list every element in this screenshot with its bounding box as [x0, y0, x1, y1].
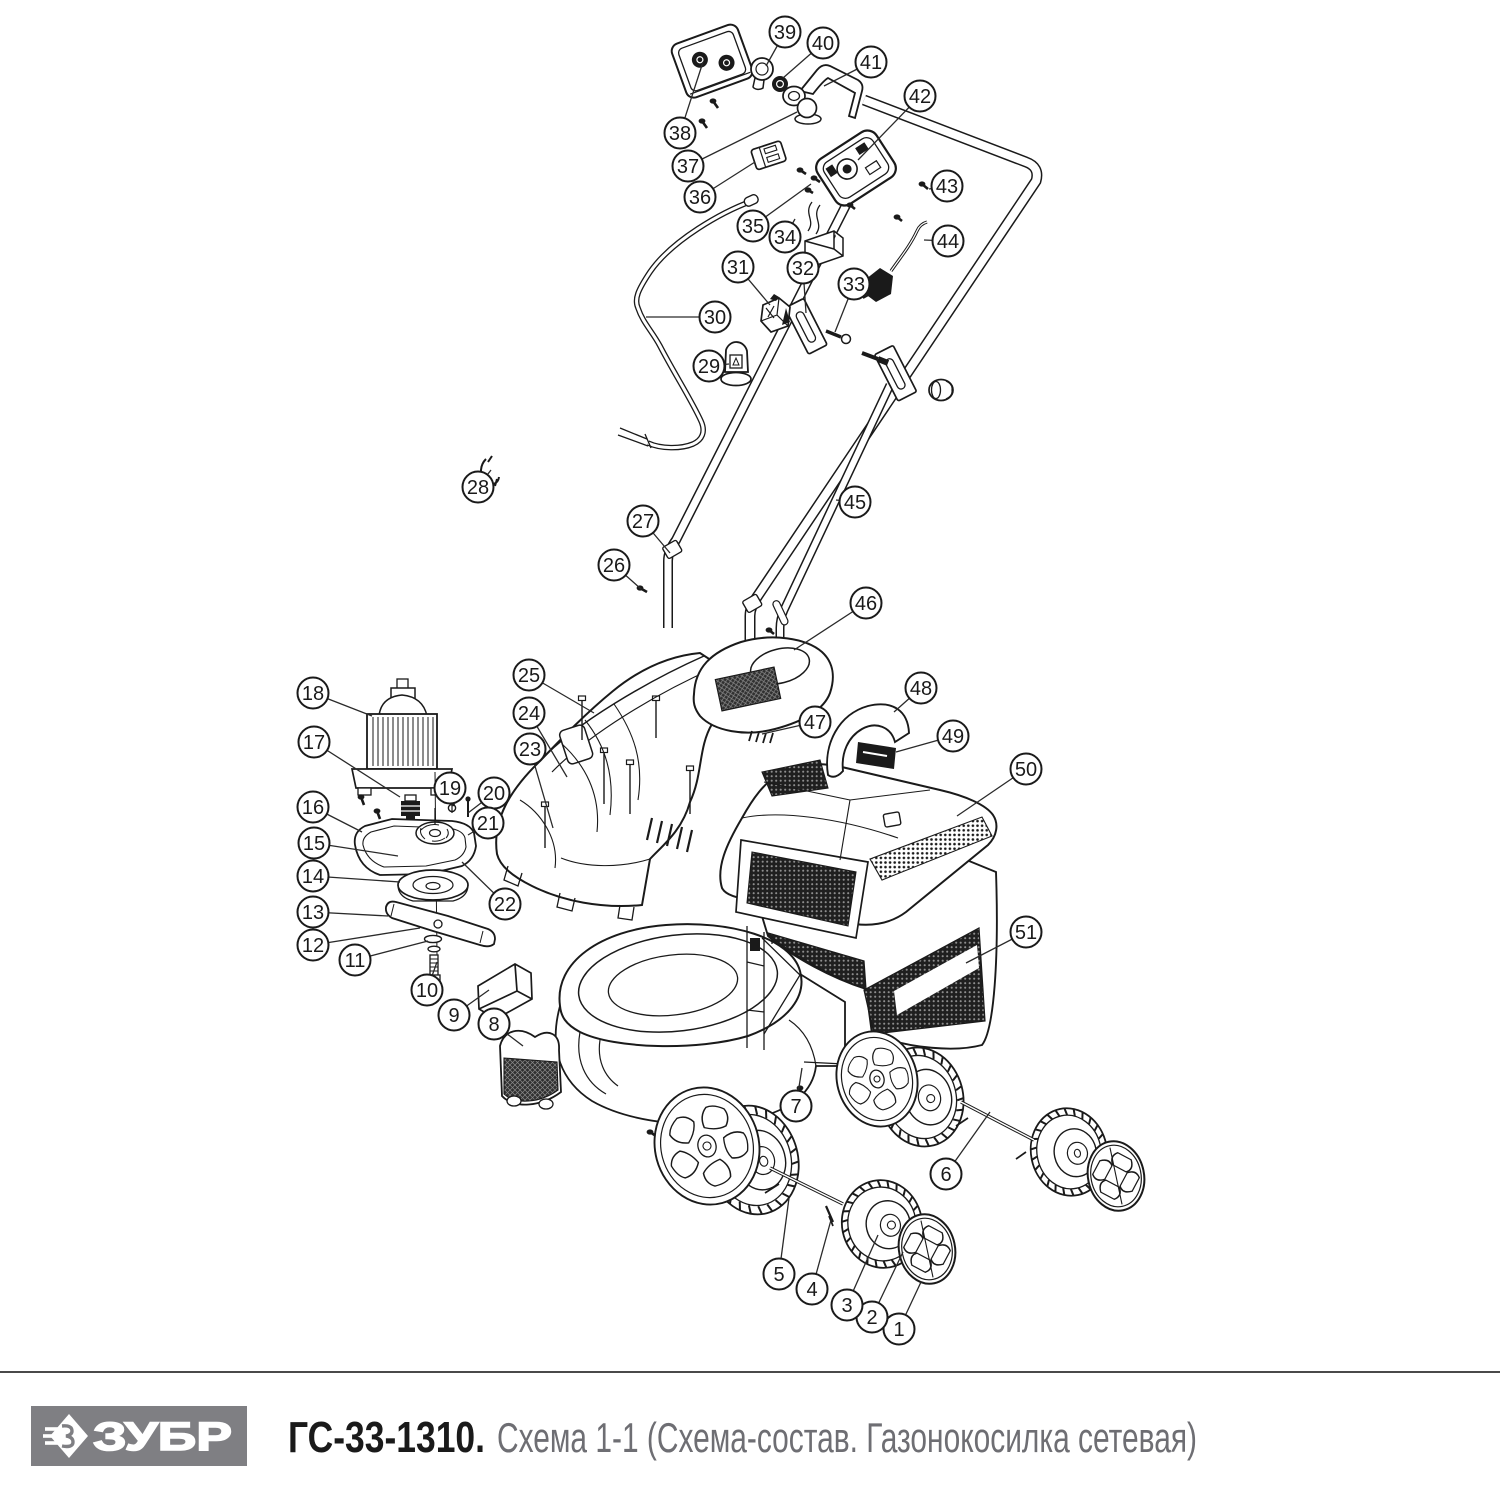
- svg-text:37: 37: [677, 156, 699, 178]
- svg-text:30: 30: [704, 307, 726, 329]
- svg-text:32: 32: [792, 258, 814, 280]
- svg-text:19: 19: [439, 778, 461, 800]
- svg-text:Схема 1-1 (Схема-состав. Газон: Схема 1-1 (Схема-состав. Газонокосилка с…: [497, 1414, 1197, 1461]
- svg-text:22: 22: [494, 894, 516, 916]
- svg-text:27: 27: [632, 511, 654, 533]
- svg-text:47: 47: [804, 712, 826, 734]
- svg-text:36: 36: [689, 187, 711, 209]
- svg-text:33: 33: [843, 274, 865, 296]
- svg-text:25: 25: [518, 665, 540, 687]
- svg-text:ЗУБР: ЗУБР: [93, 1415, 232, 1459]
- svg-text:18: 18: [302, 683, 324, 705]
- svg-text:16: 16: [302, 797, 324, 819]
- svg-text:45: 45: [844, 492, 866, 514]
- svg-text:35: 35: [742, 216, 764, 238]
- svg-text:17: 17: [303, 732, 325, 754]
- svg-text:11: 11: [345, 950, 366, 972]
- svg-text:40: 40: [812, 33, 834, 55]
- svg-text:2: 2: [866, 1307, 877, 1329]
- svg-text:23: 23: [519, 739, 541, 761]
- svg-text:48: 48: [910, 678, 932, 700]
- svg-text:29: 29: [698, 356, 720, 378]
- svg-text:49: 49: [942, 726, 964, 748]
- svg-text:34: 34: [774, 227, 796, 249]
- svg-text:44: 44: [937, 231, 959, 253]
- svg-text:39: 39: [774, 22, 796, 44]
- svg-text:50: 50: [1015, 759, 1037, 781]
- svg-text:12: 12: [302, 935, 324, 957]
- svg-text:28: 28: [467, 477, 489, 499]
- svg-text:15: 15: [303, 833, 325, 855]
- svg-text:ГС-33-1310.: ГС-33-1310.: [288, 1413, 485, 1462]
- svg-text:31: 31: [727, 257, 749, 279]
- svg-text:4: 4: [806, 1279, 817, 1301]
- svg-text:43: 43: [936, 176, 958, 198]
- svg-text:5: 5: [773, 1264, 784, 1286]
- svg-text:14: 14: [302, 866, 324, 888]
- svg-text:8: 8: [488, 1014, 499, 1036]
- svg-text:24: 24: [518, 703, 540, 725]
- svg-text:3: 3: [841, 1295, 852, 1317]
- svg-text:13: 13: [302, 902, 324, 924]
- svg-text:7: 7: [790, 1096, 801, 1118]
- svg-text:26: 26: [603, 555, 625, 577]
- svg-text:46: 46: [855, 593, 877, 615]
- svg-text:38: 38: [669, 123, 691, 145]
- svg-text:10: 10: [416, 980, 438, 1002]
- svg-text:1: 1: [893, 1319, 904, 1341]
- svg-text:42: 42: [909, 86, 931, 108]
- svg-text:21: 21: [477, 813, 499, 835]
- svg-text:9: 9: [448, 1005, 459, 1027]
- svg-text:41: 41: [860, 52, 882, 74]
- svg-text:6: 6: [940, 1164, 951, 1186]
- svg-text:51: 51: [1015, 922, 1037, 944]
- svg-text:20: 20: [483, 783, 505, 805]
